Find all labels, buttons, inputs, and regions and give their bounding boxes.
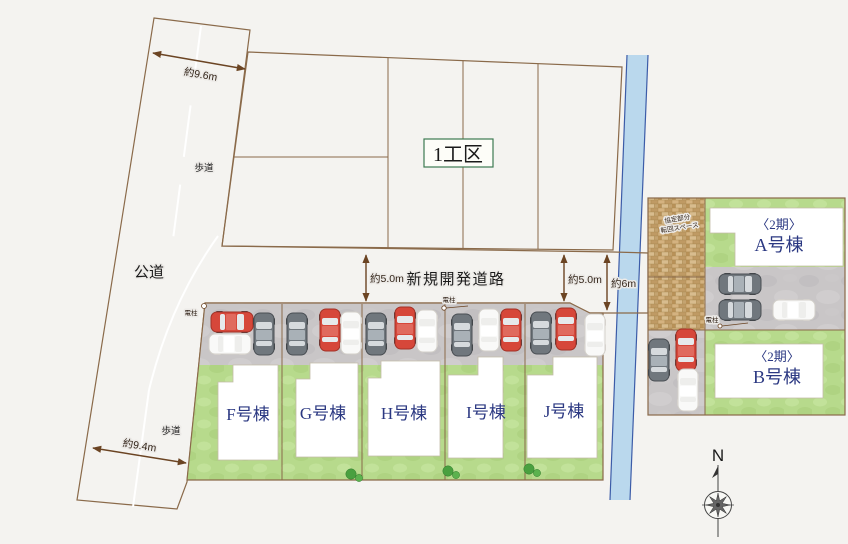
utility-pole-left-marker: [202, 304, 207, 309]
sidewalk-top-label: 歩道: [194, 162, 214, 174]
car-white-10: [478, 309, 500, 351]
car-gray-3: [286, 313, 308, 355]
car-white-17: [773, 299, 815, 321]
lot-b-phase-tag: 〈2期〉: [754, 349, 800, 364]
lot-j-label: J号棟: [544, 402, 585, 421]
dimension-label-6m: 約6m: [611, 277, 636, 290]
car-gray-9: [451, 314, 473, 356]
site-plan-page: 1工区 協定部分 転回スペース 〈2期〉 A号棟 〈2期〉 B号棟: [0, 0, 848, 544]
tree: [355, 474, 362, 481]
car-white-14: [584, 314, 606, 356]
car-gray-12: [530, 312, 552, 354]
tree: [452, 471, 459, 478]
sidewalk-bottom-label: 歩道: [161, 425, 181, 437]
car-white-1: [209, 333, 251, 355]
car-red-13: [555, 308, 577, 350]
car-red-11: [500, 309, 522, 351]
district-1-label: 1工区: [433, 144, 483, 166]
tree: [443, 466, 453, 476]
utility-pole-road-marker: [442, 306, 446, 310]
car-red-0: [211, 311, 253, 333]
car-white-20: [677, 369, 699, 411]
dimension-label-5m-left: 約5.0m: [370, 272, 404, 285]
site-plan-map: 1工区 協定部分 転回スペース 〈2期〉 A号棟 〈2期〉 B号棟: [0, 0, 848, 544]
lot-a-label: A号棟: [755, 235, 804, 255]
tree: [524, 464, 534, 474]
compass-north-label: N: [712, 446, 724, 465]
utility-pole-right-label: 電柱: [706, 315, 720, 324]
car-white-8: [416, 310, 438, 352]
dimension-label-5m-right: 約5.0m: [568, 273, 602, 286]
tree: [533, 469, 540, 476]
lot-g-label: G号棟: [300, 404, 346, 423]
lot-b-label: B号棟: [753, 367, 801, 387]
new-road-label: 新規開発道路: [406, 271, 505, 288]
utility-pole-right-marker: [718, 324, 722, 328]
car-gray-16: [719, 299, 761, 321]
car-red-4: [319, 309, 341, 351]
car-gray-15: [719, 273, 761, 295]
utility-pole-left-label: 電柱: [185, 308, 199, 317]
compass-center-dot: [716, 503, 720, 507]
car-gray-18: [648, 339, 670, 381]
car-red-7: [394, 307, 416, 349]
car-white-5: [340, 312, 362, 354]
car-gray-2: [253, 313, 275, 355]
tree: [346, 469, 356, 479]
car-gray-6: [365, 313, 387, 355]
lot-i-label: I号棟: [466, 403, 506, 422]
car-red-19: [675, 329, 697, 371]
utility-pole-road-label: 電柱: [443, 295, 457, 304]
lot-h-label: H号棟: [381, 404, 427, 423]
lot-a-phase-tag: 〈2期〉: [756, 217, 802, 232]
public-road-label: 公道: [134, 264, 164, 281]
lot-f-label: F号棟: [226, 405, 269, 424]
